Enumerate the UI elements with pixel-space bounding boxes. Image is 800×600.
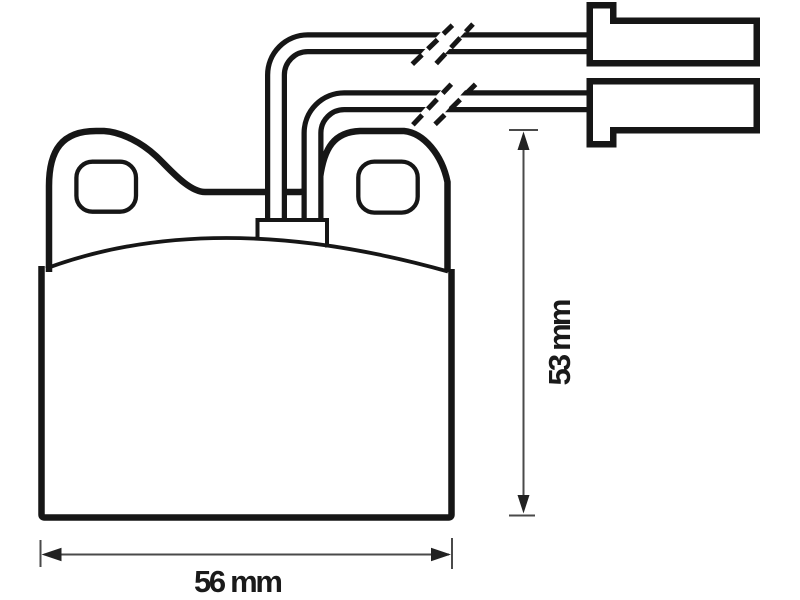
svg-text:56 mm: 56 mm xyxy=(194,564,283,599)
svg-text:53 mm: 53 mm xyxy=(542,299,577,386)
